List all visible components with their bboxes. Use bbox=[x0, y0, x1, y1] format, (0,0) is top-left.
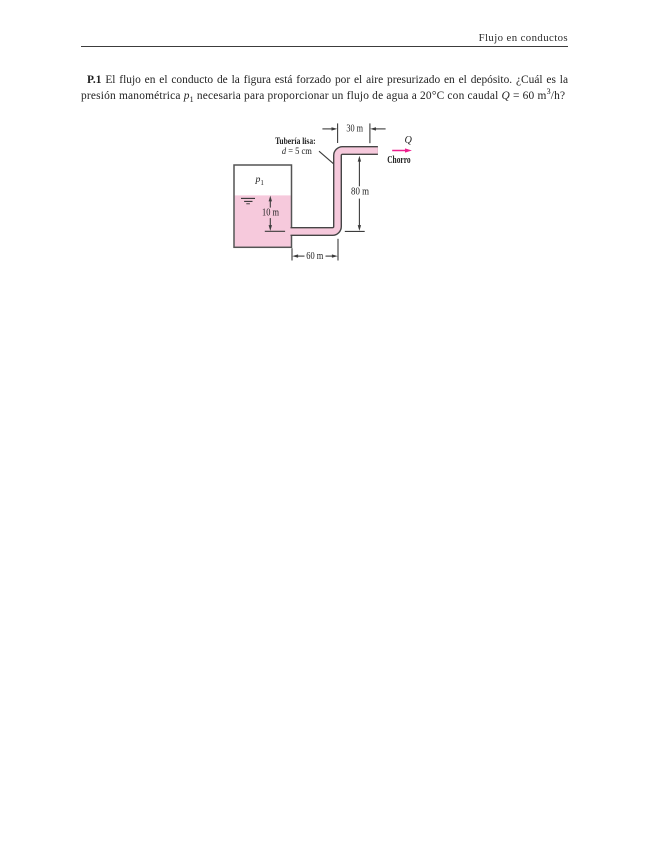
svg-text:80 m: 80 m bbox=[351, 187, 369, 198]
svg-text:Chorro: Chorro bbox=[387, 154, 410, 166]
svg-text:60 m: 60 m bbox=[306, 251, 323, 262]
svg-text:10 m: 10 m bbox=[262, 207, 279, 218]
svg-text:d = 5 cm: d = 5 cm bbox=[282, 147, 313, 157]
svg-text:Q: Q bbox=[405, 135, 413, 146]
svg-text:p1: p1 bbox=[255, 174, 265, 187]
svg-text:Tubería lisa:: Tubería lisa: bbox=[275, 137, 316, 147]
svg-text:30 m: 30 m bbox=[346, 123, 363, 134]
